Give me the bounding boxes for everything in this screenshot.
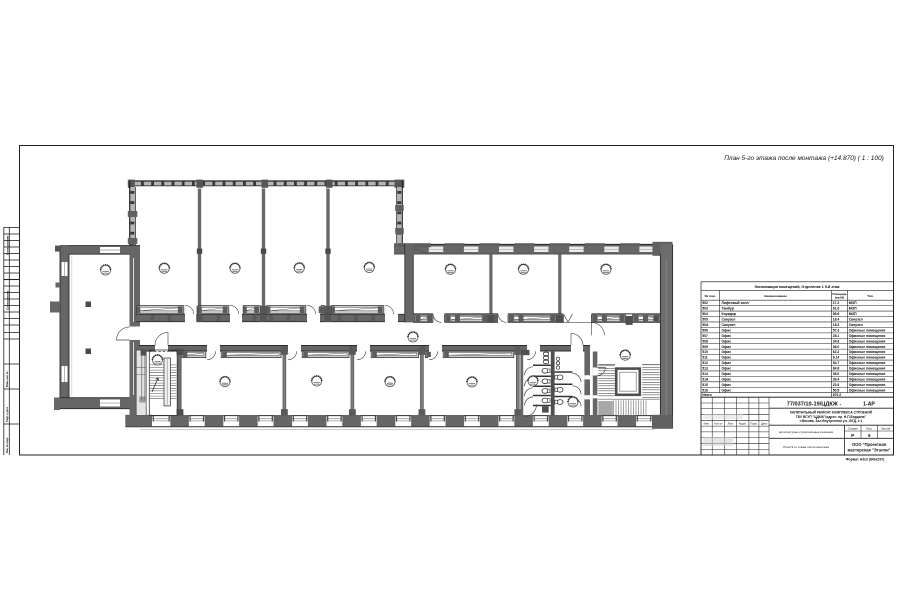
svg-text:Изм.: Изм. [704, 422, 710, 426]
svg-text:25.1: 25.1 [833, 334, 840, 338]
svg-text:ООО "Проектная: ООО "Проектная [852, 442, 887, 447]
svg-text:Взам. инв. №: Взам. инв. № [6, 371, 9, 387]
svg-text:62.2: 62.2 [833, 350, 840, 354]
svg-text:1-АР: 1-АР [863, 401, 875, 407]
svg-text:Стадия: Стадия [848, 427, 858, 431]
svg-text:Офисные помещения: Офисные помещения [849, 367, 886, 371]
svg-text:515: 515 [702, 383, 708, 387]
svg-text:Кол.уч: Кол.уч [714, 422, 723, 426]
svg-text:18.4: 18.4 [833, 318, 840, 322]
svg-text:МОП: МОП [849, 312, 857, 316]
svg-text:503: 503 [702, 307, 708, 311]
svg-text:План 5-го этажа после монтажа: План 5-го этажа после монтажа (+14.870) … [724, 155, 884, 162]
svg-text:Офис: Офис [722, 367, 732, 371]
svg-text:Офисные помещения: Офисные помещения [849, 377, 886, 381]
svg-text:513: 513 [702, 367, 708, 371]
svg-text:Офисные помещения: Офисные помещения [849, 350, 886, 354]
svg-text:512: 512 [702, 361, 708, 365]
svg-text:Тамбур: Тамбур [722, 307, 734, 311]
svg-text:23.9: 23.9 [833, 383, 840, 387]
svg-text:Офис: Офис [722, 356, 732, 360]
svg-text:Наименование: Наименование [764, 294, 787, 298]
svg-text:506: 506 [702, 328, 708, 332]
svg-text:Офисные помещения: Офисные помещения [849, 334, 886, 338]
svg-text:Офис: Офис [722, 345, 732, 349]
svg-text:Офисные помещения: Офисные помещения [849, 361, 886, 365]
svg-text:Офисные помещения: Офисные помещения [849, 383, 886, 387]
svg-text:Офисные помещения: Офисные помещения [849, 328, 886, 332]
svg-text:Офис: Офис [722, 388, 732, 392]
svg-text:№док.: №док. [739, 423, 747, 426]
svg-text:Подп.: Подп. [750, 422, 757, 426]
svg-text:508: 508 [702, 339, 708, 343]
svg-text:Офис: Офис [722, 328, 732, 332]
svg-text:Офисные помещения: Офисные помещения [849, 388, 886, 392]
svg-text:КАПИТАЛЬНЫЙ РЕМОНТ КОМПЛЕКСА С: КАПИТАЛЬНЫЙ РЕМОНТ КОМПЛЕКСА СТРОЕНИЙ [790, 410, 873, 414]
svg-text:17.2: 17.2 [833, 301, 840, 305]
svg-text:84.7: 84.7 [833, 361, 840, 365]
svg-text:51А: 51А [702, 377, 709, 381]
svg-text:36.0: 36.0 [833, 372, 840, 376]
svg-text:Формат А3х3 (840х297): Формат А3х3 (840х297) [846, 457, 884, 461]
svg-text:516: 516 [702, 388, 708, 392]
svg-text:50А: 50А [702, 323, 709, 327]
svg-text:18.3: 18.3 [833, 323, 840, 327]
svg-text:Санузел: Санузел [722, 323, 736, 327]
svg-text:61.8: 61.8 [833, 307, 840, 311]
svg-text:Инв. № подл.: Инв. № подл. [6, 437, 9, 453]
svg-text:Офис: Офис [722, 334, 732, 338]
svg-text:514: 514 [702, 372, 708, 376]
svg-text:84.8: 84.8 [833, 367, 840, 371]
svg-text:ГБУ ВГУП "ЦДКЖ"(адрес: пр. Н.П: ГБУ ВГУП "ЦДКЖ"(адрес: пр. Н.П.Бардина" [796, 415, 867, 419]
svg-text:509: 509 [702, 345, 708, 349]
svg-text:архитектурно-строительные реше: архитектурно-строительные решения [779, 430, 833, 434]
svg-text:89.6: 89.6 [833, 312, 840, 316]
svg-text:Офисные помещения: Офисные помещения [849, 356, 886, 360]
svg-text:Лист: Лист [728, 422, 735, 426]
svg-text:Офис: Офис [722, 350, 732, 354]
svg-text:8.14: 8.14 [833, 356, 840, 360]
svg-text:Согласовано: Согласовано [5, 290, 9, 310]
svg-text:Офисные помещения: Офисные помещения [849, 372, 886, 376]
svg-text:Листов: Листов [881, 427, 891, 431]
svg-text:Экспликация помещений, Отделен: Экспликация помещений, Отделение 1 5-й э… [755, 285, 840, 289]
svg-text:Офисные помещения: Офисные помещения [849, 345, 886, 349]
svg-text:г.Москва, Зал Внутренняя ул.,: г.Москва, Зал Внутренняя ул., ВГД, с.1 [800, 419, 863, 423]
svg-text:Коридор: Коридор [722, 312, 737, 316]
svg-text:77/037/10-19/ЦДКЖ -: 77/037/10-19/ЦДКЖ - [787, 401, 842, 407]
svg-text:Итого: Итого [702, 393, 712, 397]
svg-text:Тип.: Тип. [867, 294, 874, 298]
svg-text:(кв.М): (кв.М) [835, 296, 844, 300]
svg-text:504: 504 [702, 312, 708, 316]
svg-text:Подп. и дата: Подп. и дата [6, 406, 9, 422]
svg-text:Санузел: Санузел [849, 318, 863, 322]
svg-text:Согласовано: Согласовано [5, 235, 9, 255]
svg-text:34.8: 34.8 [833, 339, 840, 343]
svg-text:Офис: Офис [722, 372, 732, 376]
svg-text:502: 502 [702, 301, 708, 305]
svg-text:505: 505 [702, 318, 708, 322]
svg-text:507: 507 [702, 334, 708, 338]
svg-text:Санузел: Санузел [849, 323, 863, 327]
svg-text:Санузел: Санузел [722, 318, 736, 322]
svg-text:Офисные помещения: Офисные помещения [849, 339, 886, 343]
svg-text:57.3: 57.3 [833, 328, 840, 332]
svg-text:39.4: 39.4 [833, 377, 840, 381]
svg-text:6: 6 [868, 433, 871, 438]
svg-text:Офис: Офис [722, 377, 732, 381]
svg-text:50.5: 50.5 [833, 388, 840, 392]
svg-text:мастерская "Эталон": мастерская "Эталон" [847, 448, 890, 453]
svg-text:Офис: Офис [722, 339, 732, 343]
svg-text:Р: Р [851, 433, 854, 438]
svg-text:Лист: Лист [866, 427, 873, 431]
svg-text:Офис: Офис [722, 361, 732, 365]
svg-text:МОП: МОП [849, 301, 857, 305]
svg-text:Лифтовый холл: Лифтовый холл [722, 301, 749, 305]
svg-text:Дата: Дата [761, 422, 767, 426]
svg-text:МОП: МОП [849, 307, 857, 311]
svg-text:Офис: Офис [722, 383, 732, 387]
svg-text:511: 511 [702, 356, 708, 360]
svg-text:№ пом.: № пом. [705, 294, 716, 298]
svg-text:36.0: 36.0 [833, 345, 840, 349]
svg-text:670.2: 670.2 [833, 393, 842, 397]
svg-text:510: 510 [702, 350, 708, 354]
svg-text:План 5-го этажа после монтажа: План 5-го этажа после монтажа [783, 445, 829, 449]
